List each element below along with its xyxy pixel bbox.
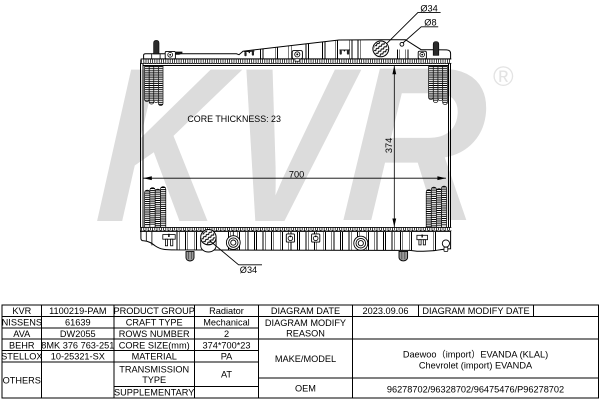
svg-text:10-25321-SX: 10-25321-SX (51, 352, 105, 362)
svg-text:8MK 376 763-251: 8MK 376 763-251 (41, 340, 114, 350)
svg-text:CORE SIZE(mm): CORE SIZE(mm) (119, 340, 190, 350)
svg-text:AT: AT (221, 370, 232, 380)
svg-text:374: 374 (384, 138, 394, 153)
svg-text:PA: PA (221, 352, 233, 362)
svg-text:OEM: OEM (295, 383, 316, 393)
svg-text:AVA: AVA (13, 329, 31, 339)
svg-text:®: ® (493, 61, 514, 92)
svg-text:CRAFT TYPE: CRAFT TYPE (126, 318, 183, 328)
svg-text:61639: 61639 (65, 318, 91, 328)
svg-text:MATERIAL: MATERIAL (132, 352, 177, 362)
svg-text:DIAGRAM DATE: DIAGRAM DATE (271, 306, 340, 316)
svg-text:374*700*23: 374*700*23 (202, 340, 250, 350)
svg-text:BEHR: BEHR (9, 340, 35, 350)
svg-text:PRODUCT GROUP: PRODUCT GROUP (113, 306, 195, 316)
svg-text:Ø34: Ø34 (240, 265, 257, 275)
svg-text:Ø34: Ø34 (420, 3, 437, 13)
svg-text:Mechanical: Mechanical (203, 318, 249, 328)
svg-text:ROWS NUMBER: ROWS NUMBER (119, 329, 190, 339)
svg-text:CORE THICKNESS: 23: CORE THICKNESS: 23 (187, 114, 281, 124)
svg-text:1100219-PAM: 1100219-PAM (49, 306, 106, 316)
svg-text:2: 2 (224, 329, 229, 339)
svg-text:Chevrolet (import) EVANDA: Chevrolet (import) EVANDA (419, 361, 533, 371)
svg-text:Ø8: Ø8 (424, 18, 436, 28)
svg-text:KVR: KVR (12, 306, 31, 316)
svg-text:OTHERS: OTHERS (3, 375, 41, 385)
svg-text:TRANSMISSION: TRANSMISSION (119, 364, 189, 374)
svg-text:Radiator: Radiator (209, 306, 244, 316)
svg-text:Daewoo（import）EVANDA (KLAL): Daewoo（import）EVANDA (KLAL) (403, 350, 548, 360)
svg-text:DW2055: DW2055 (60, 329, 96, 339)
svg-text:MAKE/MODEL: MAKE/MODEL (275, 354, 336, 364)
svg-text:DIAGRAM MODIFY DATE: DIAGRAM MODIFY DATE (422, 306, 529, 316)
svg-text:STELLOX: STELLOX (1, 352, 42, 362)
svg-text:700: 700 (289, 169, 304, 179)
svg-text:REASON: REASON (286, 328, 325, 338)
svg-text:TYPE: TYPE (142, 375, 166, 385)
svg-text:96278702/96328702/96475476/P96: 96278702/96328702/96475476/P96278702 (387, 385, 564, 395)
svg-text:DIAGRAM MODIFY: DIAGRAM MODIFY (265, 318, 346, 328)
svg-text:SUPPLEMENTARY: SUPPLEMENTARY (114, 388, 194, 398)
svg-text:NISSENS: NISSENS (2, 318, 42, 328)
svg-text:2023.09.06: 2023.09.06 (363, 306, 409, 316)
